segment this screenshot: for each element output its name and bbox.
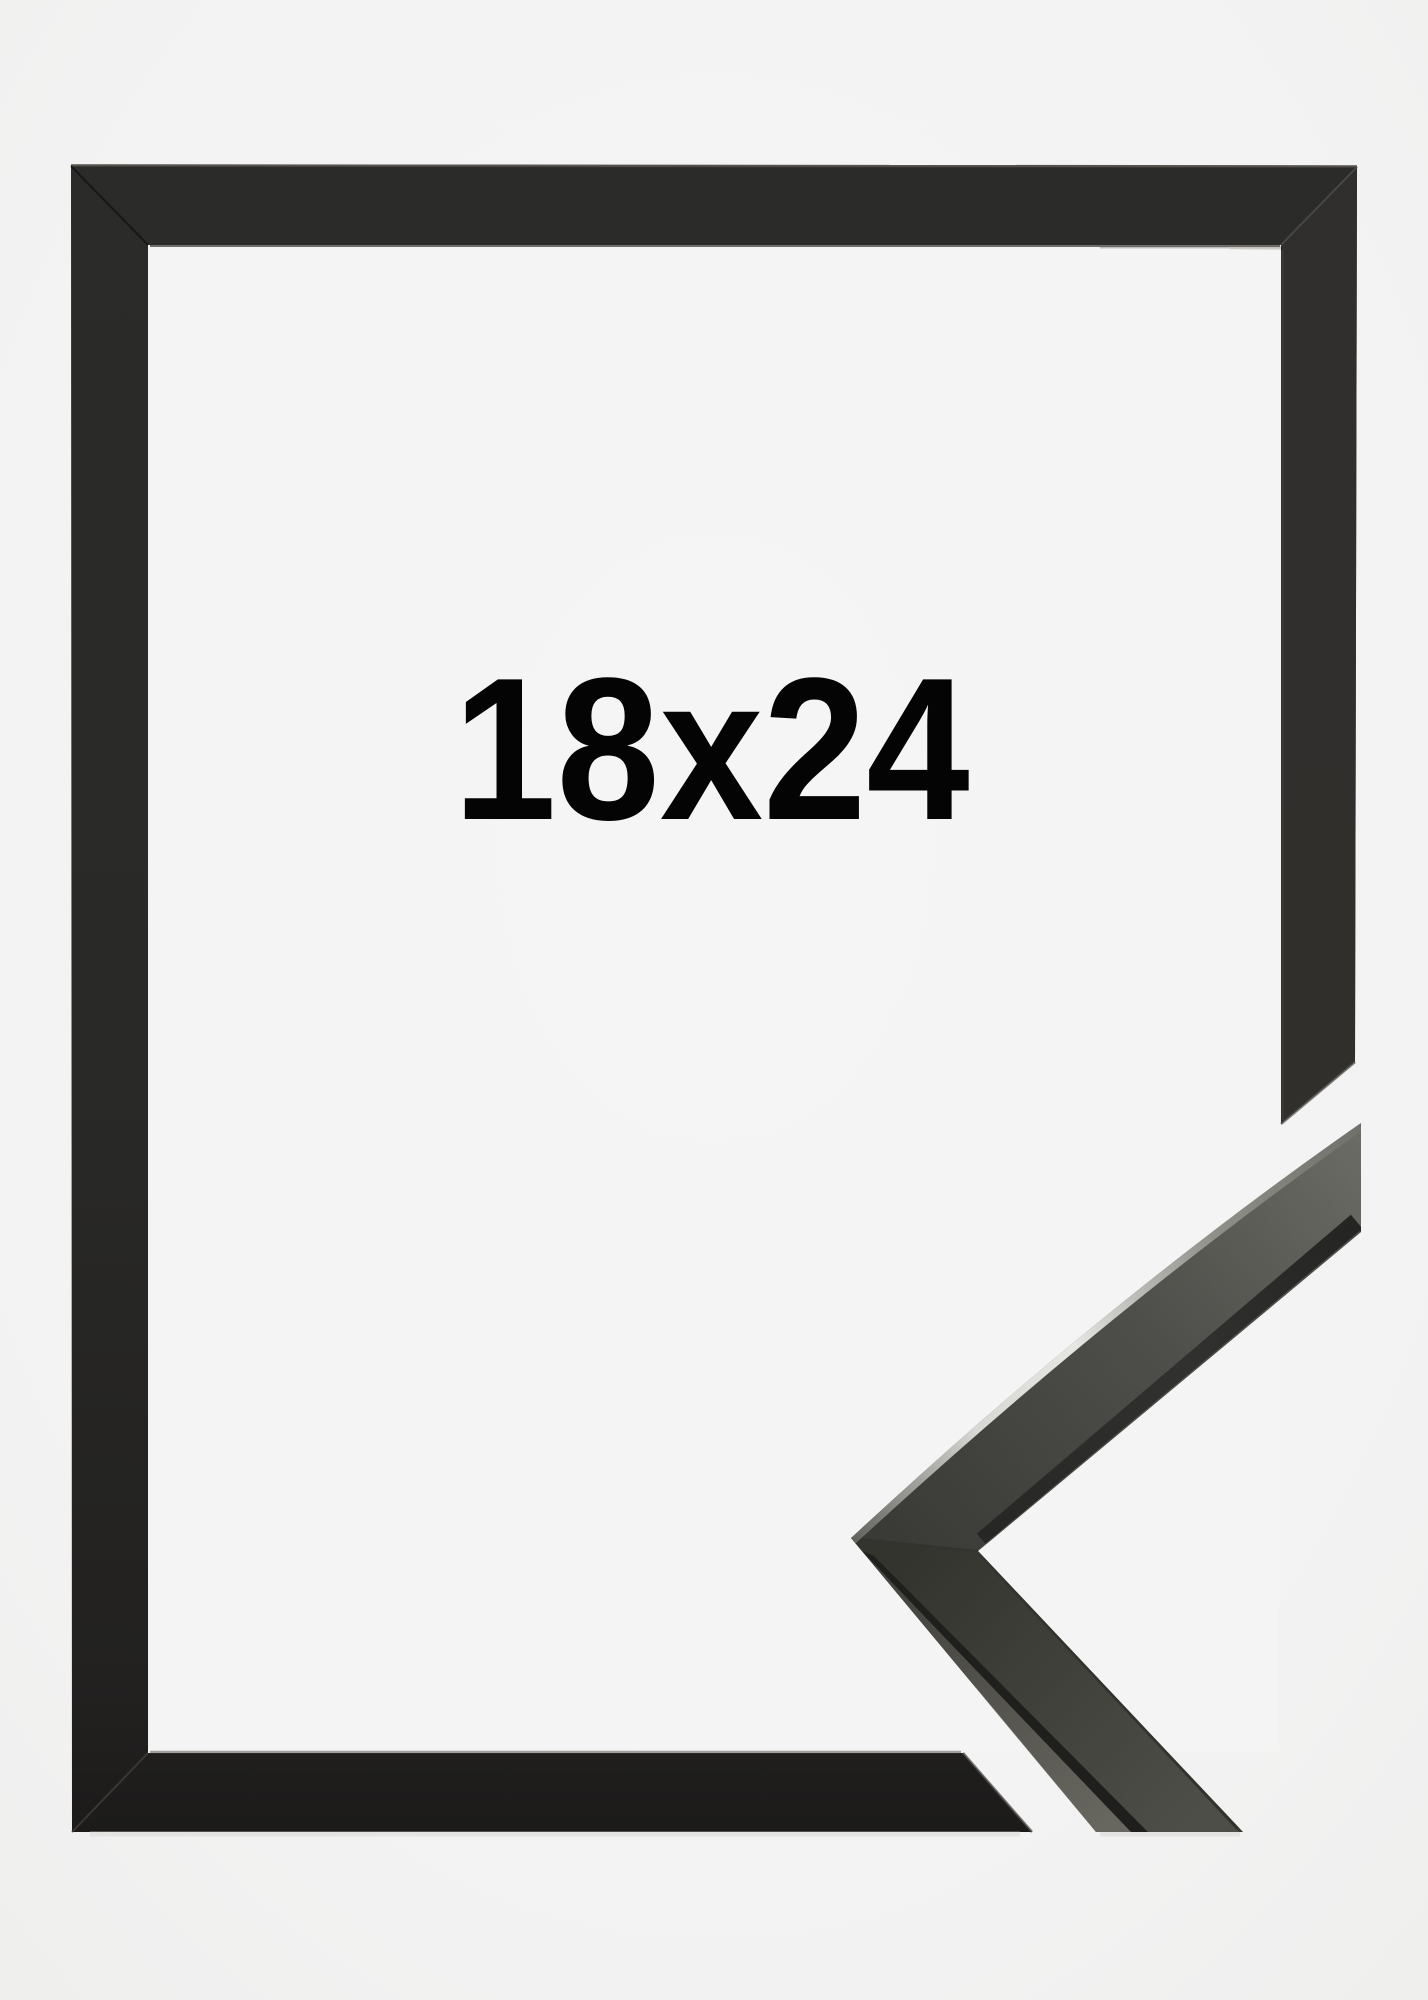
svg-text:18x24: 18x24	[453, 636, 969, 862]
